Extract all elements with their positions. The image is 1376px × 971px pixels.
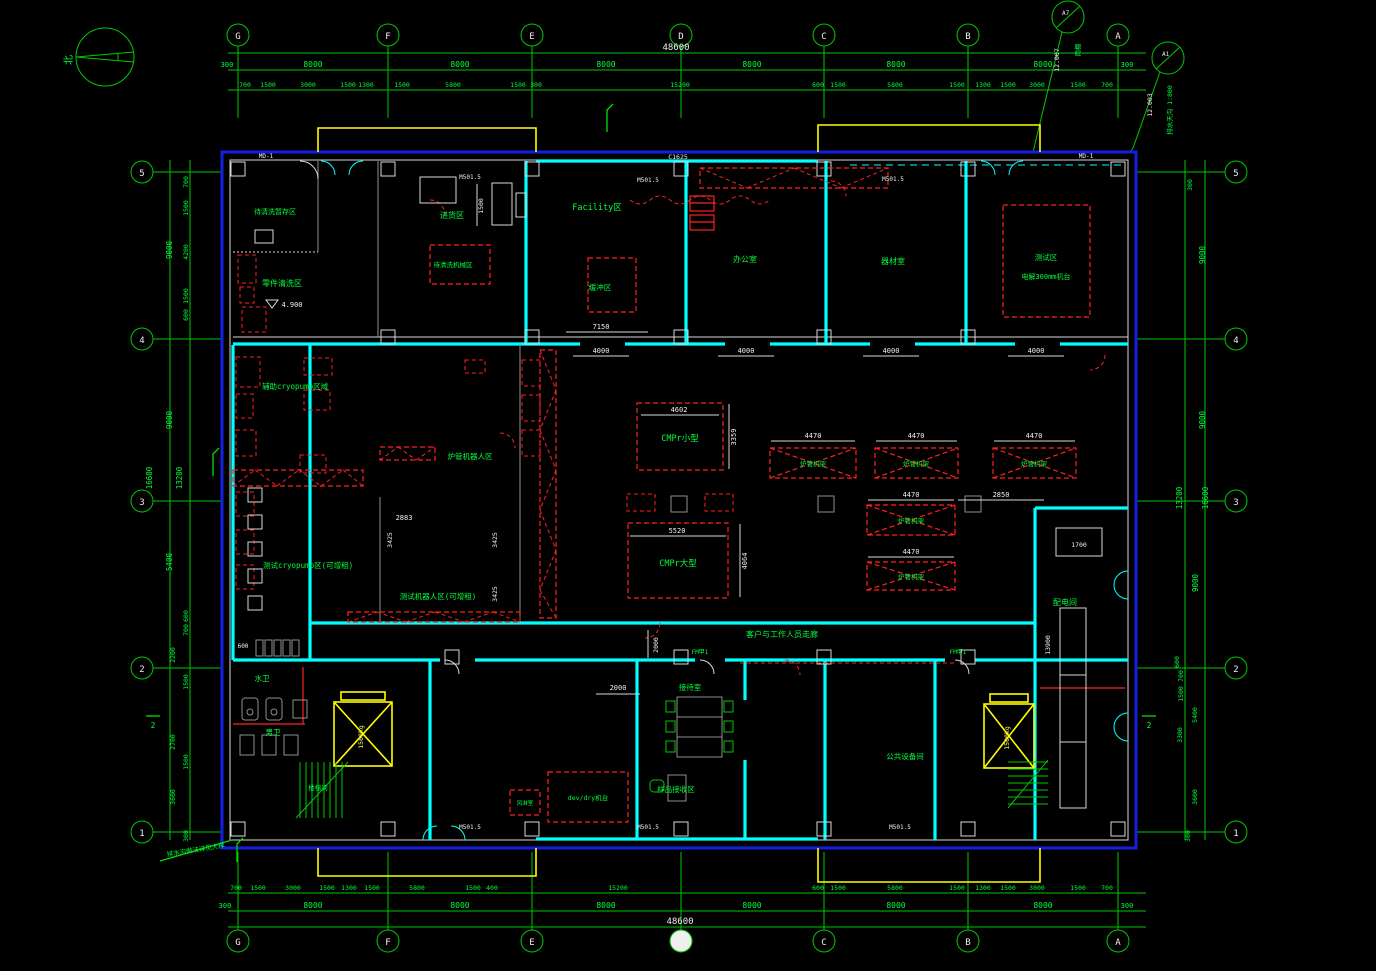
elevator-capacity: 1500kg [1003, 726, 1011, 750]
rack-label: 炉管机架 [898, 516, 925, 525]
dim: 700 [182, 624, 190, 636]
dim: 13200 [175, 466, 184, 489]
stair-label: 楼梯间 [308, 783, 328, 792]
room-label-toilet-w: 水卫 [255, 673, 270, 683]
dim: 4470 [805, 432, 822, 440]
room-label-aux-cryo: 辅助cryopump区域 [262, 381, 329, 391]
door-tag: MD-1 [259, 153, 274, 160]
dim: 5400 [165, 552, 174, 571]
dim: 4000 [593, 347, 610, 355]
detail-markers: A7 12.007 雨棚 A1 12.003 排水天沟 1:800 [1033, 1, 1184, 152]
dim: 8000 [886, 60, 905, 69]
dim: 700 [1101, 81, 1113, 89]
dim: 4000 [738, 347, 755, 355]
dim: 9000 [165, 240, 174, 259]
dim: 1500 [949, 81, 965, 89]
elevator-left: 1500kg [334, 692, 392, 766]
dim: 300 [1186, 179, 1194, 191]
wall-tag: M501.5 [882, 176, 904, 183]
dim: 3425 [491, 586, 499, 602]
dim: 8000 [303, 60, 322, 69]
room-label-facility: Facility区 [572, 203, 622, 213]
dim: 2883 [396, 514, 413, 522]
dim: 1300 [975, 884, 991, 892]
canopy-bottom-left [318, 848, 536, 876]
cad-floorplan-canvas: 北 G F E D C B A 48600 300 8000 8000 8000… [0, 0, 1376, 971]
dim: 8000 [596, 60, 615, 69]
dim: 1500 [830, 81, 846, 89]
grid-bubbles-bottom: G F E D C B A [227, 852, 1129, 952]
dim: 700 [230, 884, 242, 892]
canopy-top-left [318, 128, 536, 152]
dim: 1700 [1071, 541, 1087, 549]
dim: 1500 [182, 754, 190, 770]
dim: 3000 [1029, 884, 1045, 892]
grid-bubble-C-bottom: C [821, 938, 826, 948]
detail-marker-level: 12.003 [1146, 93, 1154, 117]
rack-label: 炉管机架 [898, 572, 925, 581]
wall-tag: M501.5 [889, 824, 911, 831]
elevator-right: 1500kg [984, 694, 1034, 768]
detail-marker-code: A1 [1162, 51, 1170, 58]
elevation-mark: 4.900 [281, 301, 302, 309]
dim: 700 [182, 176, 190, 188]
grid-bubble-2: 2 [139, 665, 144, 675]
dim: 15200 [670, 81, 690, 89]
dim: 3600 [1191, 789, 1199, 805]
room-label-parts-cleaning: 零件清洗区 [262, 278, 302, 288]
dim: 300 [219, 902, 232, 910]
dim: 300 [182, 830, 190, 842]
rack-row-top [700, 168, 888, 188]
dim: 8000 [886, 901, 905, 910]
dim: 5520 [669, 527, 686, 535]
dim: 300 [1184, 830, 1192, 842]
dim: 4000 [883, 347, 900, 355]
component-tags: MD-1 MD-1 M501.5 M501.5 M501.5 M501.5 M5… [259, 153, 1094, 831]
grid-bubble-B: B [965, 32, 970, 42]
elevator-capacity: 1500kg [357, 725, 365, 749]
dim: 5800 [887, 884, 903, 892]
dim: 3600 [169, 789, 177, 805]
dim: 600 [182, 610, 190, 622]
room-label-receiving: 进货区 [440, 210, 464, 220]
dim: 3000 [300, 81, 316, 89]
grid-right: 5 4 3 2 1 300 9000 9000 13200 16600 9000… [1136, 160, 1247, 843]
dim: 1500 [250, 884, 266, 892]
grid-bubble-1r: 1 [1233, 829, 1238, 839]
wall-tag: M501.5 [637, 177, 659, 184]
dim: 7150 [593, 323, 610, 331]
dim: 1500 [182, 200, 190, 216]
north-compass: 北 [63, 28, 134, 86]
dim: 13900 [1044, 635, 1052, 655]
dim: 1500 [477, 198, 485, 214]
structural-columns [231, 162, 1125, 836]
grid-bubble-A-bottom: A [1115, 938, 1121, 948]
dim: 600 [238, 643, 249, 650]
grid-bubble-1: 1 [139, 829, 144, 839]
grid-bubble-D: D [678, 32, 683, 42]
dim: 4470 [1026, 432, 1043, 440]
dim: 4602 [671, 406, 688, 414]
tables-red [690, 196, 714, 230]
dim: 700 [1177, 670, 1185, 682]
equipment-zones-red [233, 168, 1105, 822]
dim: 1500 [510, 81, 526, 89]
dim: 2700 [169, 734, 177, 750]
canopy-top-right [818, 125, 1040, 152]
dim: 4470 [908, 432, 925, 440]
dim: 2000 [652, 637, 660, 653]
section-cut-label: 2 [1147, 721, 1152, 730]
dim: 600 [812, 81, 824, 89]
dim: 1500 [340, 81, 356, 89]
grid-bubble-C: C [821, 32, 826, 42]
dim: 300 [1121, 902, 1134, 910]
dim: 1500 [830, 884, 846, 892]
dim: 5800 [409, 884, 425, 892]
dim: 3425 [491, 532, 499, 548]
dim: 600 [1173, 656, 1181, 668]
dim: 2000 [610, 684, 627, 692]
dim: 1500 [949, 884, 965, 892]
canopy-bottom-right [818, 848, 1040, 882]
dim: 2850 [993, 491, 1010, 499]
grid-bubble-A: A [1115, 32, 1121, 42]
grid-bubble-2r: 2 [1233, 665, 1238, 675]
room-label-electrolysis: 电解300mm机台 [1021, 272, 1070, 281]
dim: 1500 [1070, 81, 1086, 89]
rack-label: 炉管机架 [1021, 459, 1048, 468]
grid-bubble-E-bottom: E [529, 938, 534, 948]
wall-tag: M501.5 [637, 824, 659, 831]
room-label-cmpr-small: CMPr小型 [661, 433, 699, 444]
room-label-reception: 接待室 [679, 682, 702, 692]
toilet-fixtures [240, 698, 307, 755]
dim: 3000 [1029, 81, 1045, 89]
hatch-band-center-vertical [540, 350, 556, 618]
dim-total-bottom: 48600 [666, 917, 693, 927]
detail-marker-note: 排水天沟 1:800 [1165, 85, 1174, 135]
grid-bubble-3: 3 [139, 498, 144, 508]
dim: 5800 [887, 81, 903, 89]
dim: 3300 [1176, 727, 1184, 743]
dim: 1500 [364, 884, 380, 892]
dim: 1500 [394, 81, 410, 89]
grid-bubble-5r: 5 [1233, 169, 1238, 179]
room-label-test-robot: 测试机器人区(可增租) [400, 591, 477, 601]
detail-marker-level: 12.007 [1053, 48, 1061, 72]
dim: 1500 [1000, 884, 1016, 892]
room-label-power: 配电间 [1053, 597, 1077, 607]
dim: 700 [239, 81, 251, 89]
room-label-cmpr-large: CMPr大型 [659, 558, 697, 569]
dim: 5400 [1191, 707, 1199, 723]
dim: 8000 [596, 901, 615, 910]
rack-label: 炉管机架 [903, 459, 930, 468]
dim: 300 [221, 61, 234, 69]
grid-bottom: G F E D C B A 48600 300 8000 8000 8000 8… [219, 852, 1146, 952]
room-label-test-cryo: 测试cryopump区(可增租) [263, 560, 353, 570]
grid-bubbles-top: G F E D C B A [227, 24, 1129, 118]
grid-bubble-4r: 4 [1233, 336, 1238, 346]
dim: 1500 [182, 674, 190, 690]
fire-door-tag: FM甲1 [950, 649, 967, 656]
grid-top: G F E D C B A 48600 300 8000 8000 8000 8… [221, 24, 1146, 118]
room-label-test: 测试区 [1035, 252, 1058, 262]
grid-bubble-E: E [529, 32, 534, 42]
dim: 15200 [608, 884, 628, 892]
dim: 3359 [730, 429, 738, 446]
dim: 9000 [1198, 410, 1207, 429]
dim: 1300 [358, 81, 374, 89]
room-label-air-shower: 风淋室 [517, 799, 534, 807]
room-label-devdry: dev/dry机台 [568, 793, 608, 802]
dim: 8000 [450, 901, 469, 910]
dim: 700 [1101, 884, 1113, 892]
dim: 600 [182, 309, 190, 321]
detail-marker-code: A7 [1062, 10, 1070, 17]
room-label-equipment: 器材室 [881, 256, 905, 266]
dim: 300 [530, 81, 542, 89]
dim: 8000 [450, 60, 469, 69]
dim: 1500 [260, 81, 276, 89]
corridor-label: 客户与工作人员走廊 [746, 629, 818, 639]
dim-total-top: 48600 [662, 43, 689, 53]
room-label-tube-robot: 炉管机器人区 [448, 451, 493, 461]
stair-left: 楼梯间 [296, 762, 348, 818]
dim: 1300 [341, 884, 357, 892]
dim: 1500 [182, 288, 190, 304]
dim: 5800 [445, 81, 461, 89]
dim: 13200 [1175, 486, 1184, 509]
door-tag: MD-1 [1079, 153, 1094, 160]
dim: 4470 [903, 491, 920, 499]
dim: 3425 [386, 532, 394, 548]
dim: 16600 [145, 466, 154, 489]
dim: 1500 [1000, 81, 1016, 89]
detail-marker-note: 雨棚 [1073, 43, 1082, 57]
dim: 9000 [165, 410, 174, 429]
dim: 400 [486, 884, 498, 892]
dim: 1500 [465, 884, 481, 892]
dim: 8000 [1033, 60, 1052, 69]
dim: 1500 [319, 884, 335, 892]
grid-bubble-G: G [235, 32, 240, 42]
room-label-public-equip: 公共设备间 [886, 751, 924, 761]
room-label-toilet-m: 男卫 [266, 728, 281, 737]
room-label-office: 办公室 [733, 254, 757, 264]
room-label-staging-box: 待清洗机械区 [434, 260, 474, 269]
drain-note: 排水沟做法详见大样 [166, 840, 226, 858]
grid-bubble-4: 4 [139, 336, 144, 346]
interior-dims: 7150 4000 4000 4000 4000 4602 3359 5520 … [238, 153, 1087, 694]
hatch-band-corridor [348, 612, 520, 622]
dim: 4470 [903, 548, 920, 556]
dim: 9000 [1191, 573, 1200, 592]
grid-bubble-F: F [385, 32, 390, 42]
grid-left: 5 4 3 2 1 700 1500 4200 1500 600 9000 90… [131, 160, 222, 843]
dim: 3000 [285, 884, 301, 892]
section-cut-label: 2 [151, 721, 156, 730]
grid-bubbles-right: 5 4 3 2 1 [1136, 161, 1247, 843]
window-tag: C1625 [668, 153, 688, 161]
equipment-white [240, 177, 1102, 808]
wall-tag: M501.5 [459, 824, 481, 831]
dim: 9000 [1198, 245, 1207, 264]
room-label-staging: 待清洗暂存区 [254, 207, 296, 216]
dim: 4200 [182, 244, 190, 260]
dim: 1500 [1177, 686, 1185, 702]
dim: 300 [1121, 61, 1134, 69]
floorplan-drawing: 北 G F E D C B A 48600 300 8000 8000 8000… [0, 0, 1376, 971]
grid-bubble-G-bottom: G [235, 938, 240, 948]
dim: 1500 [1070, 884, 1086, 892]
wall-tag: M501.5 [459, 174, 481, 181]
hatch-band-mid [380, 447, 435, 460]
room-label-sample: 样品接收区 [657, 784, 695, 794]
dim: 16600 [1201, 486, 1210, 509]
north-label: 北 [63, 55, 75, 65]
dim: 1300 [975, 81, 991, 89]
dim: 4000 [1028, 347, 1045, 355]
rack-label: 炉管机架 [800, 459, 827, 468]
dim: 4064 [741, 553, 749, 570]
dim: 8000 [1033, 901, 1052, 910]
dim: 8000 [303, 901, 322, 910]
dim: 600 [812, 884, 824, 892]
dim: 8000 [742, 60, 761, 69]
dim: 2200 [169, 647, 177, 663]
locker-row [256, 640, 299, 656]
conference-table [666, 697, 733, 757]
grid-bubble-D-bottom: D [678, 938, 683, 948]
dim: 8000 [742, 901, 761, 910]
grid-bubble-3r: 3 [1233, 498, 1238, 508]
grid-bubble-F-bottom: F [385, 938, 390, 948]
grid-bubble-5: 5 [139, 169, 144, 179]
room-label-buffer: 缓冲区 [589, 282, 612, 292]
hatch-band-left [233, 470, 363, 486]
fire-door-tag: FM甲1 [692, 649, 709, 656]
grid-bubble-B-bottom: B [965, 938, 970, 948]
